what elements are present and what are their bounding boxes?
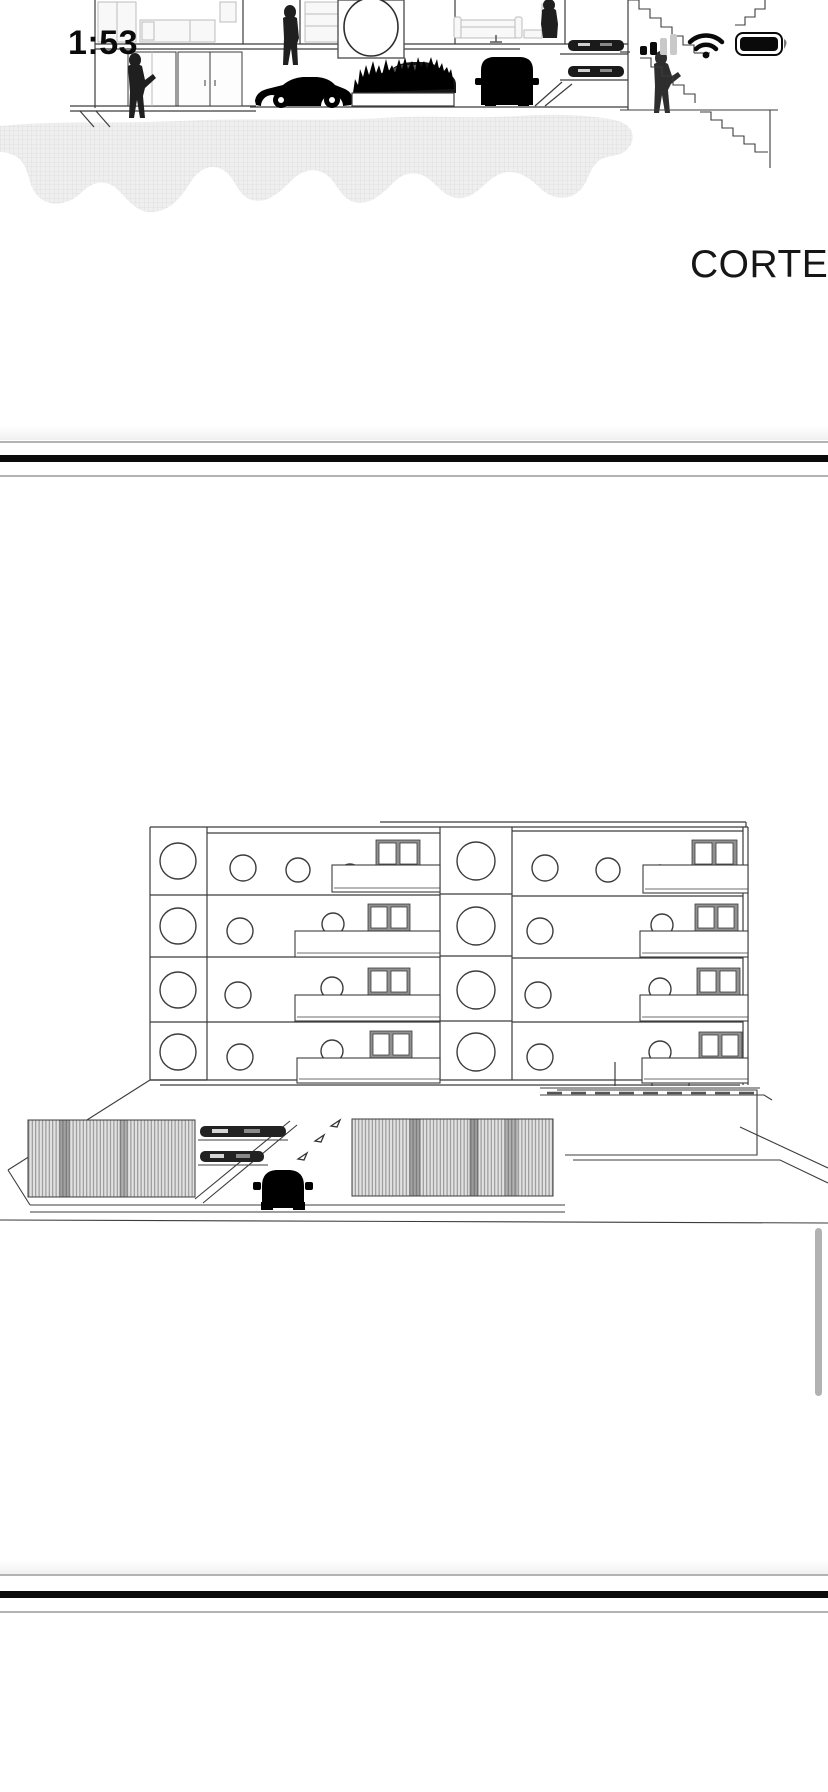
parked-car-silhouette: [200, 1126, 286, 1162]
staircase: [620, 0, 778, 168]
page-gap-divider: [0, 1591, 828, 1598]
page-border-line: [0, 441, 828, 443]
scrollbar-thumb[interactable]: [815, 1228, 822, 1396]
round-window: [344, 0, 398, 56]
porthole-panel: [338, 0, 404, 58]
cellular-signal-icon: [640, 34, 677, 55]
status-bar-icons: [630, 28, 800, 62]
battery-icon: [736, 33, 787, 55]
suv-silhouette: [475, 57, 539, 106]
person-silhouette: [283, 5, 299, 65]
document-page-next[interactable]: [0, 1613, 828, 1792]
balconies: [295, 865, 748, 1083]
document-page-corte[interactable]: 1:53 CORTE: [0, 0, 828, 440]
car-silhouette: [253, 1170, 313, 1210]
page-gap-divider: [0, 455, 828, 462]
document-page-fachada[interactable]: FACHADA FRONTAL: [0, 477, 828, 1597]
parked-car-silhouette: [568, 40, 624, 77]
person-silhouette: [541, 0, 558, 38]
ground-hatch: [0, 115, 633, 212]
page-border-line: [0, 1574, 828, 1576]
hedge-silhouette: [353, 57, 454, 93]
page-edge-shade: [0, 426, 828, 440]
furniture-sketch: [98, 2, 554, 42]
page-edge-shade: [0, 1560, 828, 1574]
screenshot-root: { "status_bar": { "time": "1:53", "signa…: [0, 0, 828, 1792]
driveway-marks: [298, 1120, 340, 1160]
status-bar-time: 1:53: [68, 24, 138, 63]
door-panels: [128, 52, 242, 106]
wifi-icon: [690, 36, 722, 59]
planter-box: [352, 93, 454, 106]
corte-caption: CORTE: [690, 243, 828, 287]
fachada-drawing: [0, 700, 828, 1275]
